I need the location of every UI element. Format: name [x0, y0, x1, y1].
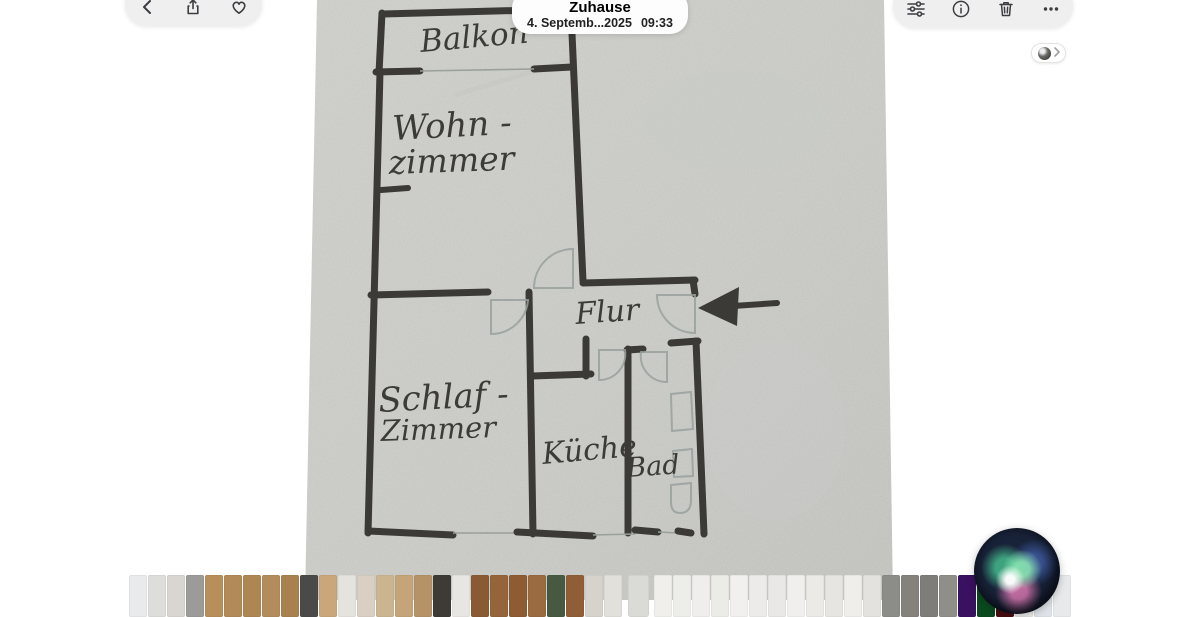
photo-time: 09:33 [641, 16, 673, 31]
filmstrip-thumbnail[interactable] [395, 575, 413, 617]
visual-lookup-badge[interactable] [1031, 43, 1066, 63]
filmstrip-thumbnail[interactable] [357, 575, 375, 617]
filmstrip-thumbnail-selected[interactable] [628, 575, 649, 617]
filmstrip-thumbnail[interactable] [205, 575, 223, 617]
toolbar-left [125, 0, 262, 26]
filmstrip-thumbnail[interactable] [844, 575, 862, 617]
filmstrip-thumbnail[interactable] [509, 575, 527, 617]
filmstrip-thumbnail[interactable] [452, 575, 470, 617]
filmstrip-thumbnail[interactable] [471, 575, 489, 617]
delete-button[interactable] [989, 0, 1023, 26]
filmstrip-thumbnail[interactable] [433, 575, 451, 617]
room-label-bad: Bad [624, 449, 680, 484]
toolbar-right [893, 0, 1073, 28]
photos-app-screen: { "header": { "title": "Zuhause", "date_… [0, 0, 1200, 600]
filmstrip-thumbnail[interactable] [863, 575, 881, 617]
lookup-icon [1038, 47, 1051, 60]
filmstrip-thumbnail[interactable] [319, 575, 337, 617]
photo-canvas[interactable]: Balkon Wohn - zimmer Flur Schlaf - Zimme… [305, 0, 893, 600]
filmstrip-thumbnail[interactable] [528, 575, 546, 617]
filmstrip-thumbnail[interactable] [129, 575, 147, 617]
filmstrip-thumbnail[interactable] [787, 575, 805, 617]
filmstrip-thumbnail[interactable] [692, 575, 710, 617]
room-label-flur: Flur [573, 292, 642, 332]
filmstrip-thumbnail[interactable] [882, 575, 900, 617]
adjust-sliders-icon [905, 0, 927, 19]
photo-date: 4. Septemb...2025 [527, 16, 632, 31]
filmstrip-thumbnail[interactable] [768, 575, 786, 617]
filmstrip-thumbnail[interactable] [148, 575, 166, 617]
filmstrip-thumbnail[interactable] [167, 575, 185, 617]
info-icon [951, 0, 971, 19]
filmstrip-thumbnail[interactable] [730, 575, 748, 617]
floor-plan-drawing: Balkon Wohn - zimmer Flur Schlaf - Zimme… [305, 0, 893, 600]
filmstrip-thumbnail[interactable] [711, 575, 729, 617]
room-label-wohnzimmer-2: zimmer [387, 139, 517, 182]
siri-orb[interactable] [974, 528, 1060, 614]
filmstrip-thumbnail[interactable] [243, 575, 261, 617]
photo-title: Zuhause [569, 0, 631, 16]
filmstrip-thumbnail[interactable] [376, 575, 394, 617]
filmstrip-thumbnail[interactable] [262, 575, 280, 617]
favorite-heart-icon [229, 0, 249, 17]
filmstrip-thumbnail[interactable] [547, 575, 565, 617]
filmstrip-thumbnail[interactable] [338, 575, 356, 617]
trash-icon [996, 0, 1016, 19]
filmstrip-thumbnail[interactable] [920, 575, 938, 617]
filmstrip-thumbnail[interactable] [281, 575, 299, 617]
favorite-button[interactable] [222, 0, 256, 24]
filmstrip-thumbnail[interactable] [901, 575, 919, 617]
room-label-schlafzimmer-2: Zimmer [379, 410, 499, 448]
filmstrip-thumbnail[interactable] [490, 575, 508, 617]
filmstrip-thumbnail[interactable] [958, 575, 976, 617]
filmstrip-thumbnail[interactable] [806, 575, 824, 617]
filmstrip-thumbnail[interactable] [585, 575, 603, 617]
filmstrip-thumbnail[interactable] [566, 575, 584, 617]
more-button[interactable] [1034, 0, 1068, 26]
filmstrip-thumbnail[interactable] [414, 575, 432, 617]
share-button[interactable] [176, 0, 210, 24]
filmstrip-thumbnail[interactable] [654, 575, 672, 617]
adjust-button[interactable] [899, 0, 933, 26]
filmstrip-thumbnail[interactable] [825, 575, 843, 617]
filmstrip-thumbnail[interactable] [224, 575, 242, 617]
more-ellipsis-icon [1041, 0, 1061, 19]
photo-info-pill[interactable]: Zuhause 4. Septemb...2025 09:33 [512, 0, 688, 34]
info-button[interactable] [944, 0, 978, 26]
filmstrip-thumbnail[interactable] [673, 575, 691, 617]
filmstrip-thumbnail[interactable] [749, 575, 767, 617]
share-icon [183, 0, 203, 17]
back-icon [138, 0, 158, 17]
chevron-right-icon [1054, 44, 1060, 62]
filmstrip-thumbnail[interactable] [300, 575, 318, 617]
filmstrip-thumbnail[interactable] [186, 575, 204, 617]
filmstrip-thumbnail[interactable] [939, 575, 957, 617]
filmstrip-thumbnail[interactable] [604, 575, 622, 617]
back-button[interactable] [131, 0, 165, 24]
